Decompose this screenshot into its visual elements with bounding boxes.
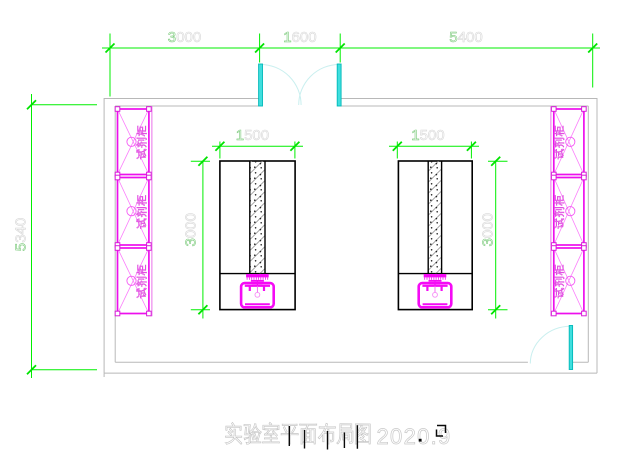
svg-text:000: 000: [183, 213, 200, 238]
svg-text:000: 000: [176, 29, 201, 46]
svg-text:600: 600: [292, 29, 317, 46]
svg-text:5: 5: [13, 243, 30, 251]
svg-text:500: 500: [420, 127, 445, 144]
svg-text:400: 400: [458, 29, 483, 46]
svg-text:5: 5: [449, 29, 457, 46]
svg-text:1: 1: [411, 127, 419, 144]
svg-text:3: 3: [480, 238, 497, 246]
svg-text:1: 1: [236, 127, 244, 144]
svg-text:000: 000: [480, 213, 497, 238]
svg-text:3: 3: [183, 238, 200, 246]
svg-text:340: 340: [13, 218, 30, 243]
svg-text:1: 1: [283, 29, 291, 46]
svg-text:500: 500: [244, 127, 269, 144]
svg-text:3: 3: [168, 29, 176, 46]
